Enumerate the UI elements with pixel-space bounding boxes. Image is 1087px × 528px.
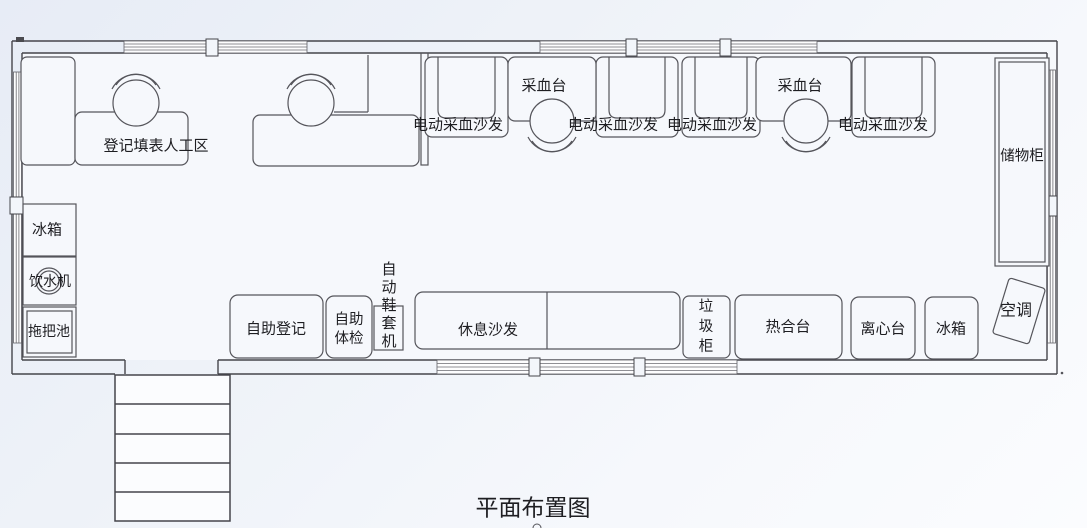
- sofa-label-2: 电动采血沙发: [568, 116, 658, 133]
- page-title: 平面布置图: [476, 495, 591, 520]
- fridge-right: 冰箱: [925, 297, 978, 359]
- storage-cabinet: 储物柜: [995, 58, 1049, 266]
- mop-sink: 拖把池: [23, 307, 76, 357]
- air-conditioner-label: 空调: [1000, 302, 1032, 320]
- water-dispenser: 饮水机: [23, 257, 76, 305]
- corner-dot: [1061, 372, 1064, 375]
- trash-cabinet: 垃圾柜: [683, 296, 730, 358]
- trash-cabinet-label: 垃圾柜: [699, 298, 714, 355]
- window-strip: [540, 41, 627, 53]
- stool-2: [784, 99, 828, 143]
- heat-sealer-label: 热合台: [765, 318, 810, 335]
- chair-2: [288, 80, 334, 126]
- window-pillar: [529, 358, 540, 376]
- self-registration-kiosk: 自助登记: [230, 295, 323, 358]
- fridge-left: 冰箱: [23, 204, 76, 256]
- mop-sink-label: 拖把池: [28, 324, 70, 340]
- sofa-label-3: 电动采血沙发: [667, 116, 757, 133]
- window-pillar: [10, 197, 23, 214]
- left-equipment: 冰箱 饮水机 拖把池: [23, 204, 76, 357]
- rest-sofa-label: 休息沙发: [458, 321, 518, 338]
- title-block: 平面布置图: [476, 495, 591, 528]
- self-registration-label: 自助登记: [246, 320, 306, 337]
- window-strip: [437, 360, 530, 374]
- self-checkup-kiosk: 自助体检: [326, 296, 372, 358]
- window-pillar: [626, 39, 637, 56]
- shoe-cover-machine-label: 自动鞋套机: [381, 261, 396, 350]
- window-strip: [218, 41, 307, 53]
- corner-notch: [16, 37, 24, 42]
- window-pillar: [634, 358, 645, 376]
- collection-table-label: 采血台: [521, 77, 566, 94]
- window-strip: [645, 360, 737, 374]
- fridge-left-label: 冰箱: [32, 221, 62, 238]
- stairs: [115, 375, 230, 521]
- chair-1: [113, 80, 159, 126]
- water-dispenser-label: 饮水机: [29, 274, 71, 290]
- rest-sofa: 休息沙发: [415, 292, 680, 349]
- floor-plan-drawing: 登记填表人工区 采血台: [0, 0, 1087, 528]
- heat-sealer: 热合台: [735, 295, 842, 359]
- storage-cabinet-label: 储物柜: [1000, 147, 1044, 164]
- window-strip: [540, 360, 635, 374]
- window-strip: [636, 41, 721, 53]
- registration-area-label: 登记填表人工区: [103, 137, 208, 154]
- window-pillar: [206, 39, 218, 56]
- registration-desk-panel: [21, 57, 75, 165]
- sofa-label-1: 电动采血沙发: [413, 116, 503, 133]
- fridge-right-label: 冰箱: [936, 320, 966, 337]
- title-underline-mark: [533, 524, 541, 528]
- sofa-label-4: 电动采血沙发: [838, 116, 928, 133]
- collection-table-label: 采血台: [777, 77, 822, 94]
- window-strip: [730, 41, 817, 53]
- centrifuge-table: 离心台: [851, 297, 915, 359]
- registration-desk-2: [253, 115, 419, 166]
- floor-plan-canvas: 登记填表人工区 采血台: [0, 0, 1087, 528]
- window-strip: [124, 41, 207, 53]
- bottom-windows: [437, 358, 737, 376]
- window-pillar: [720, 39, 731, 56]
- centrifuge-label: 离心台: [860, 320, 905, 337]
